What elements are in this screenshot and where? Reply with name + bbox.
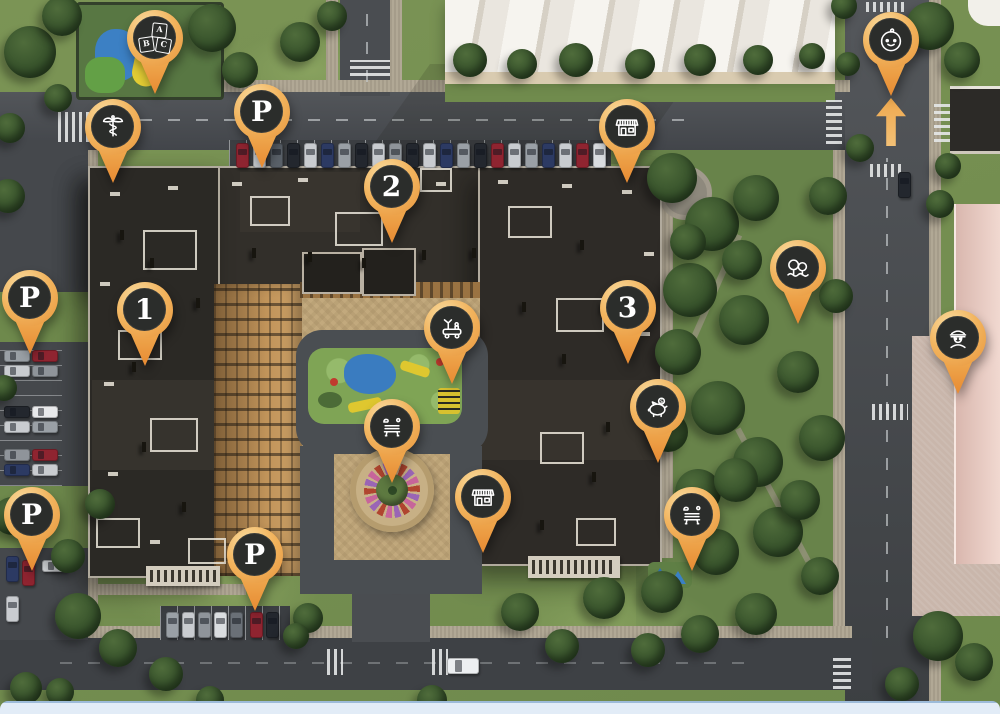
trees-icon: [782, 252, 814, 284]
pin-disc: 3: [606, 286, 649, 329]
pin-head: [930, 310, 986, 366]
pin-disc: [91, 105, 134, 148]
pin-building-2[interactable]: 2: [364, 159, 420, 247]
pin-disc: $: [636, 385, 679, 428]
pin-disc: P: [233, 533, 276, 576]
pin-head: [364, 399, 420, 455]
pin-label: P: [19, 276, 40, 319]
caduceus-icon: [97, 111, 129, 143]
pin-kindergarten[interactable]: ABC: [127, 10, 183, 98]
pin-disc: [670, 493, 713, 536]
pin-bench-park[interactable]: [664, 487, 720, 575]
pin-label: 1: [135, 288, 154, 331]
pin-police[interactable]: [930, 310, 986, 398]
storefront-icon: [467, 481, 499, 513]
pin-disc: 2: [370, 165, 413, 208]
pin-head: P: [227, 527, 283, 583]
pin-bank[interactable]: $: [630, 379, 686, 467]
pin-building-3[interactable]: 3: [600, 280, 656, 368]
pin-parking-west[interactable]: P: [2, 270, 58, 358]
pin-label: P: [251, 90, 272, 133]
pin-disc: [776, 246, 819, 289]
pin-parking-southwest[interactable]: P: [4, 487, 60, 575]
pin-head: [455, 469, 511, 525]
pin-head: 3: [600, 280, 656, 336]
pin-bench-courtyard[interactable]: [364, 399, 420, 487]
storefront-icon: [611, 111, 643, 143]
bottom-ui-strip: [0, 701, 1000, 714]
pin-park[interactable]: [770, 240, 826, 328]
police-officer-icon: [942, 322, 974, 354]
pin-head: 2: [364, 159, 420, 215]
pin-head: 1: [117, 282, 173, 338]
pin-disc: [430, 306, 473, 349]
pin-medical[interactable]: [85, 99, 141, 187]
pin-label: P: [244, 533, 265, 576]
pin-disc: [370, 405, 413, 448]
pin-head: P: [234, 84, 290, 140]
pin-label: P: [21, 493, 42, 536]
pin-disc: [461, 475, 504, 518]
toy-truck-icon: [436, 312, 468, 344]
pin-disc: [605, 105, 648, 148]
bench-icon: [676, 499, 708, 531]
pin-nursery[interactable]: [863, 12, 919, 100]
pin-head: [85, 99, 141, 155]
pin-head: P: [2, 270, 58, 326]
pin-head: [664, 487, 720, 543]
pin-head: ABC: [127, 10, 183, 66]
pin-disc: P: [240, 90, 283, 133]
pin-head: $: [630, 379, 686, 435]
baby-icon: [875, 24, 907, 56]
bench-icon: [376, 411, 408, 443]
svg-text:$: $: [659, 398, 663, 404]
pin-building-1[interactable]: 1: [117, 282, 173, 370]
pin-head: [863, 12, 919, 68]
masterplan-map: ABCP2P13$PP: [0, 0, 1000, 714]
pin-parking-south[interactable]: P: [227, 527, 283, 615]
pin-disc: [936, 316, 979, 359]
pin-label: 3: [618, 286, 637, 329]
pin-head: [770, 240, 826, 296]
pin-head: P: [4, 487, 60, 543]
pin-layer: ABCP2P13$PP: [0, 0, 1000, 714]
pin-head: [424, 300, 480, 356]
pin-store-north[interactable]: [599, 99, 655, 187]
pin-disc: [869, 18, 912, 61]
pin-label: 2: [382, 165, 401, 208]
pin-parking-north[interactable]: P: [234, 84, 290, 172]
pin-head: [599, 99, 655, 155]
pin-disc: P: [8, 276, 51, 319]
pin-disc: P: [10, 493, 53, 536]
pin-disc: 1: [123, 288, 166, 331]
piggy-bank-icon: $: [642, 391, 674, 423]
pin-disc: ABC: [133, 16, 176, 59]
pin-playground[interactable]: [424, 300, 480, 388]
abc-blocks-icon: ABC: [139, 22, 171, 54]
pin-store-south[interactable]: [455, 469, 511, 557]
